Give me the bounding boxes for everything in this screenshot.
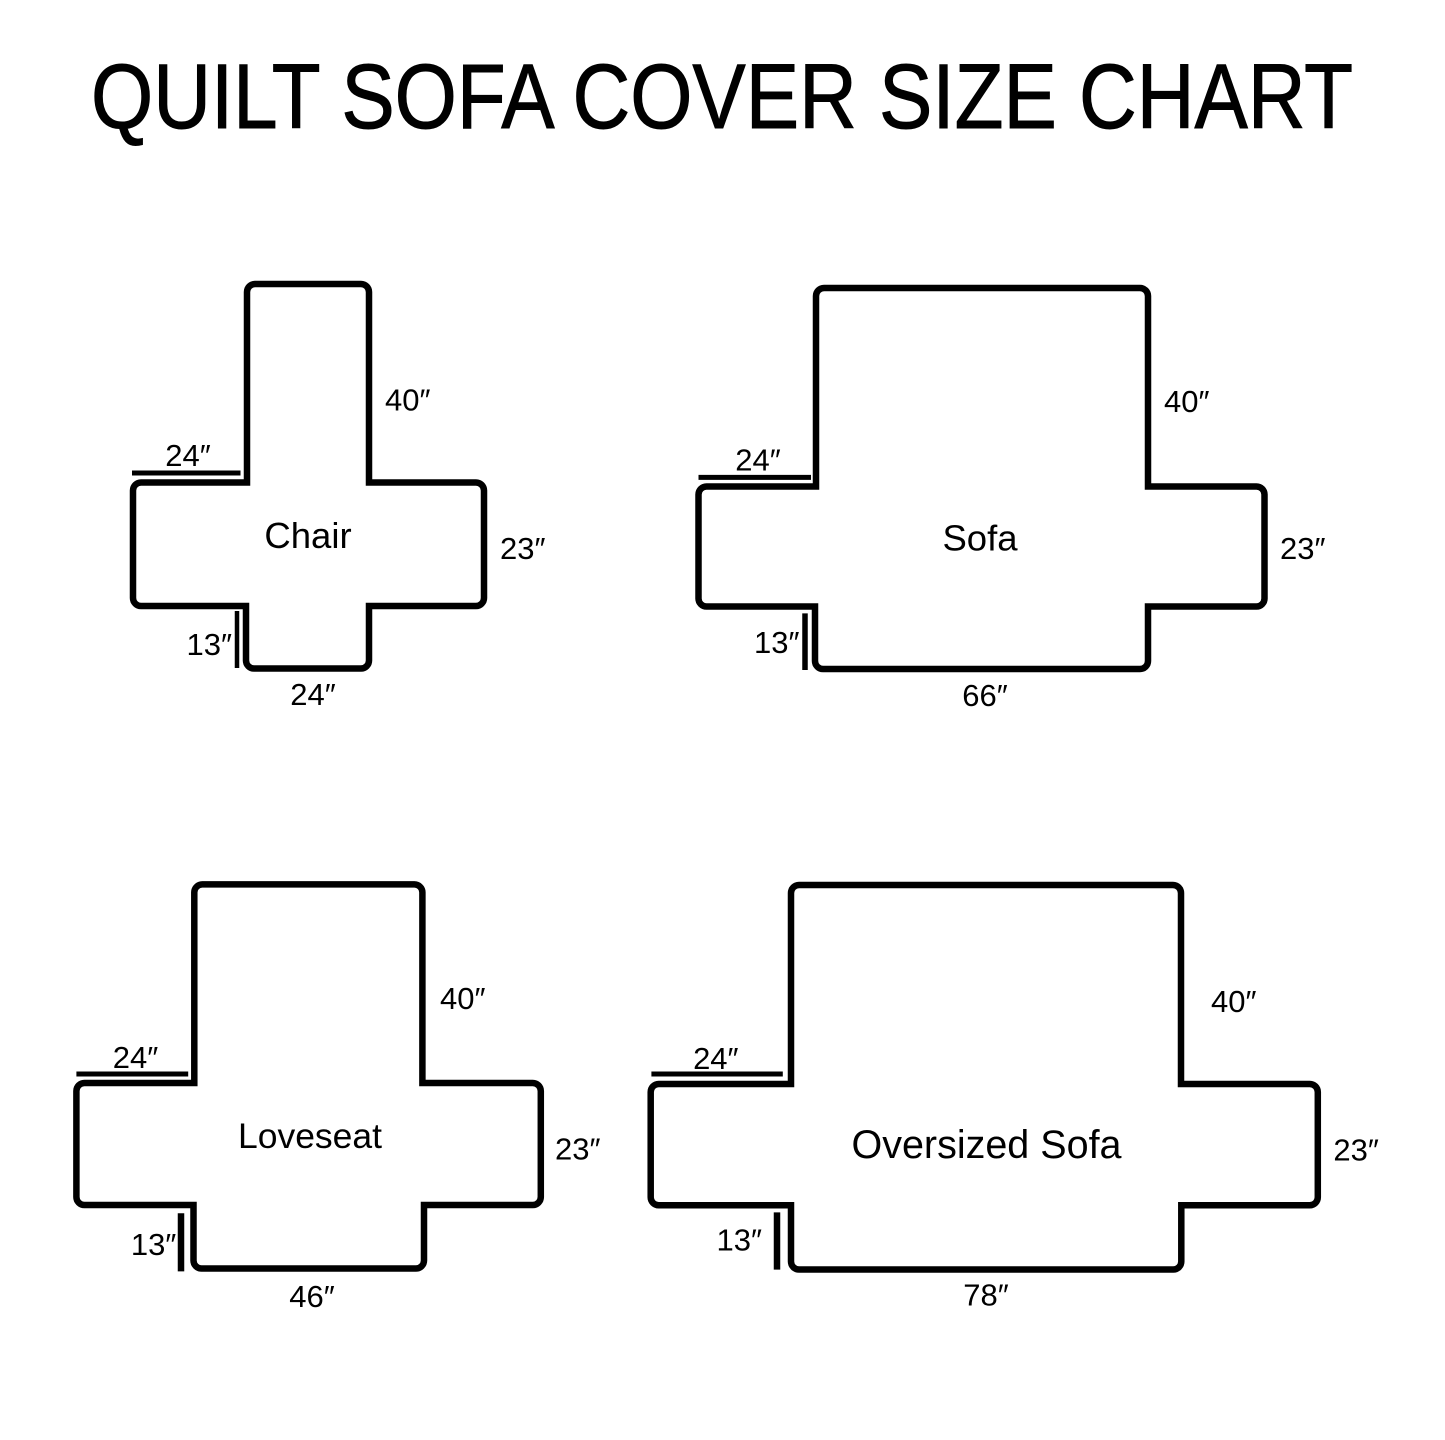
svg-text:24″: 24″: [165, 438, 210, 473]
svg-text:13″: 13″: [131, 1227, 176, 1262]
svg-text:QUILT SOFA COVER SIZE CHART: QUILT SOFA COVER SIZE CHART: [91, 46, 1353, 148]
svg-text:Chair: Chair: [264, 515, 351, 556]
svg-text:23″: 23″: [500, 531, 545, 566]
svg-text:46″: 46″: [289, 1279, 334, 1314]
svg-text:40″: 40″: [1164, 384, 1209, 419]
svg-text:24″: 24″: [693, 1041, 738, 1076]
svg-text:23″: 23″: [1333, 1133, 1378, 1168]
svg-text:Loveseat: Loveseat: [238, 1116, 382, 1156]
svg-text:Sofa: Sofa: [942, 518, 1018, 559]
svg-text:23″: 23″: [555, 1132, 600, 1167]
svg-text:13″: 13″: [754, 625, 799, 660]
svg-text:24″: 24″: [113, 1040, 158, 1075]
svg-text:40″: 40″: [385, 383, 430, 418]
svg-text:24″: 24″: [735, 443, 780, 478]
svg-text:40″: 40″: [1211, 984, 1256, 1019]
svg-text:24″: 24″: [290, 677, 335, 712]
svg-text:Oversized Sofa: Oversized Sofa: [851, 1123, 1121, 1167]
svg-text:66″: 66″: [962, 678, 1007, 713]
svg-text:13″: 13″: [187, 627, 232, 662]
svg-text:78″: 78″: [963, 1278, 1008, 1313]
svg-text:23″: 23″: [1280, 531, 1325, 566]
svg-text:13″: 13″: [717, 1223, 762, 1258]
svg-text:40″: 40″: [440, 981, 485, 1016]
